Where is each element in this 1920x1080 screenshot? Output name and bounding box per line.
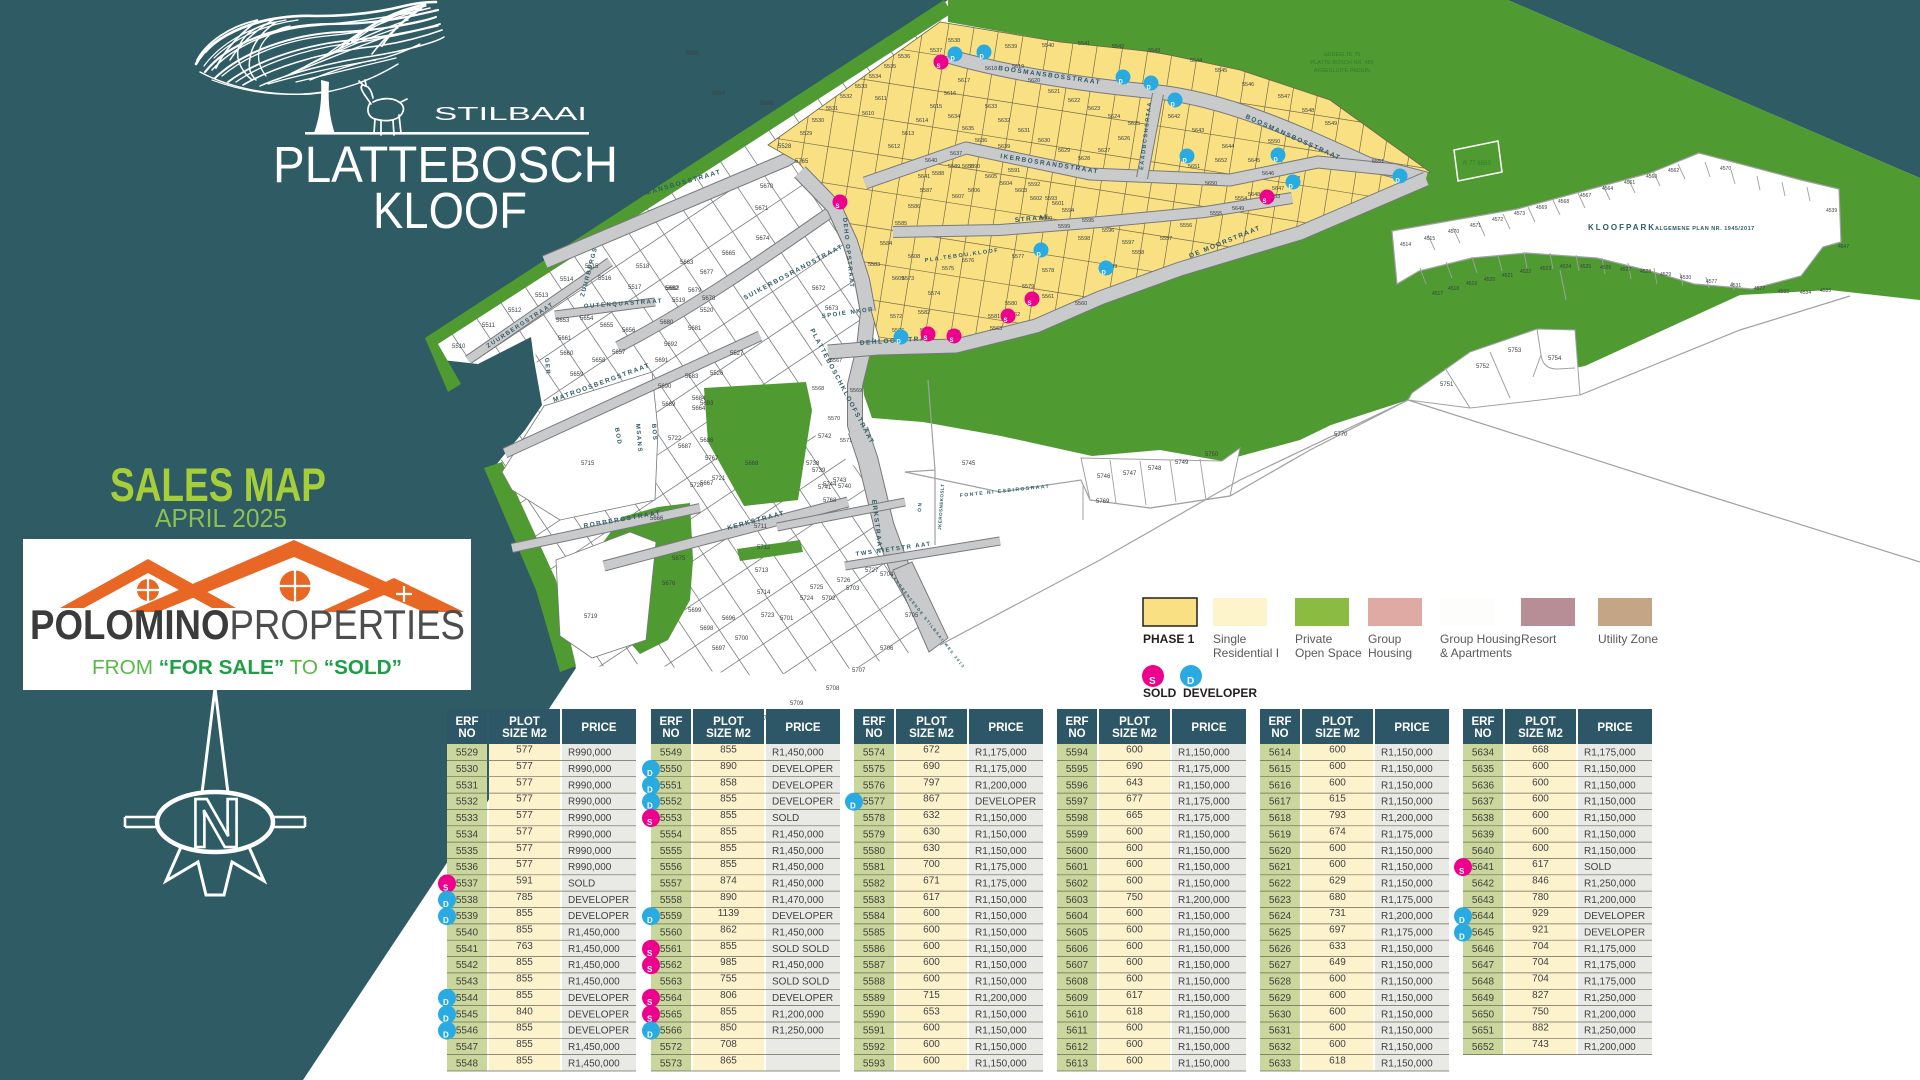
svg-text:5592: 5592 [863, 1042, 886, 1053]
svg-text:5750: 5750 [1205, 452, 1219, 458]
svg-text:4526: 4526 [1600, 265, 1611, 271]
svg-text:R1,175,000: R1,175,000 [1381, 829, 1433, 840]
svg-text:5586: 5586 [908, 204, 920, 210]
svg-text:855: 855 [516, 908, 533, 919]
svg-text:5597: 5597 [1066, 797, 1089, 808]
svg-text:& Apartments: & Apartments [1440, 646, 1512, 660]
svg-text:5714: 5714 [757, 590, 771, 596]
svg-text:4571: 4571 [1470, 223, 1481, 229]
svg-text:5639: 5639 [998, 144, 1010, 150]
svg-text:R1,150,000: R1,150,000 [1381, 1042, 1433, 1053]
svg-text:4564: 4564 [1602, 186, 1613, 192]
svg-text:5607: 5607 [952, 194, 964, 200]
svg-text:5708: 5708 [826, 686, 840, 692]
svg-text:R1,150,000: R1,150,000 [1584, 829, 1636, 840]
svg-text:5678: 5678 [702, 296, 716, 302]
svg-text:R990,000: R990,000 [568, 829, 612, 840]
svg-text:D: D [980, 55, 985, 61]
svg-text:R1,150,000: R1,150,000 [1584, 780, 1636, 791]
svg-text:R1,175,000: R1,175,000 [1584, 944, 1636, 955]
svg-text:5559: 5559 [660, 911, 683, 922]
svg-text:5614: 5614 [1269, 748, 1292, 759]
svg-text:5533: 5533 [855, 84, 867, 90]
svg-text:4525: 4525 [1580, 264, 1591, 270]
svg-text:5634: 5634 [948, 114, 960, 120]
svg-text:5536: 5536 [456, 862, 479, 873]
svg-text:5738: 5738 [806, 461, 820, 467]
svg-text:5638: 5638 [962, 164, 974, 170]
svg-text:4562: 4562 [1668, 168, 1679, 174]
svg-text:5638: 5638 [1472, 813, 1495, 824]
svg-text:R1,150,000: R1,150,000 [1178, 944, 1230, 955]
svg-text:1139: 1139 [718, 908, 740, 919]
svg-text:5619: 5619 [1012, 64, 1024, 70]
svg-text:R1,150,000: R1,150,000 [1381, 780, 1433, 791]
svg-text:5698: 5698 [700, 626, 714, 632]
svg-text:5635: 5635 [962, 126, 974, 132]
svg-text:806: 806 [720, 990, 737, 1001]
svg-text:731: 731 [1329, 908, 1346, 919]
svg-text:D: D [1274, 158, 1279, 164]
svg-text:5688: 5688 [760, 101, 774, 107]
svg-text:4577: 4577 [1706, 279, 1717, 285]
svg-text:Resort: Resort [1521, 632, 1557, 646]
svg-text:ERF: ERF [1066, 716, 1089, 728]
svg-text:5589: 5589 [948, 164, 960, 170]
svg-text:763: 763 [516, 941, 533, 952]
svg-text:600: 600 [923, 925, 940, 936]
svg-text:5642: 5642 [1472, 879, 1495, 890]
svg-text:R1,175,000: R1,175,000 [975, 862, 1027, 873]
svg-text:4529: 4529 [1660, 272, 1671, 278]
svg-text:617: 617 [1126, 990, 1143, 1001]
svg-text:PLOT: PLOT [1119, 716, 1150, 728]
svg-text:600: 600 [1532, 794, 1549, 805]
svg-text:5600: 5600 [1040, 216, 1052, 222]
svg-text:5613: 5613 [902, 131, 914, 137]
svg-text:4560: 4560 [1646, 174, 1657, 180]
svg-text:R1,150,000: R1,150,000 [975, 977, 1027, 988]
svg-text:5676: 5676 [662, 581, 676, 587]
svg-text:5598: 5598 [1066, 813, 1089, 824]
svg-text:R1,175,000: R1,175,000 [1584, 977, 1636, 988]
svg-text:5619: 5619 [1269, 829, 1292, 840]
svg-text:600: 600 [1532, 777, 1549, 788]
svg-text:5616: 5616 [1269, 780, 1292, 791]
svg-text:5553: 5553 [660, 813, 683, 824]
svg-text:R1,450,000: R1,450,000 [772, 928, 824, 939]
svg-text:5699: 5699 [688, 608, 702, 614]
svg-text:5648: 5648 [1472, 977, 1495, 988]
svg-text:5575: 5575 [942, 266, 954, 272]
svg-text:5709: 5709 [790, 701, 804, 707]
svg-text:674: 674 [1329, 826, 1346, 837]
svg-text:858: 858 [720, 777, 737, 788]
svg-text:5577: 5577 [863, 797, 886, 808]
svg-text:5517: 5517 [628, 285, 642, 291]
svg-text:5739: 5739 [812, 468, 826, 474]
svg-text:630: 630 [923, 826, 940, 837]
svg-text:5748: 5748 [1148, 466, 1162, 472]
svg-text:PRICE: PRICE [785, 722, 820, 734]
svg-text:591: 591 [516, 876, 533, 887]
svg-text:5603: 5603 [1015, 188, 1027, 194]
svg-text:600: 600 [1329, 745, 1346, 756]
svg-text:5579: 5579 [863, 829, 886, 840]
svg-text:5581: 5581 [863, 862, 886, 873]
svg-text:R1,150,000: R1,150,000 [1178, 829, 1230, 840]
svg-text:R1,150,000: R1,150,000 [975, 1058, 1027, 1069]
svg-text:S: S [937, 64, 941, 70]
svg-text:5563: 5563 [660, 977, 683, 988]
svg-text:5634: 5634 [1472, 748, 1495, 759]
svg-text:5663: 5663 [680, 260, 694, 266]
svg-text:5646: 5646 [1472, 944, 1495, 955]
svg-text:S: S [647, 965, 653, 974]
svg-text:R1,450,000: R1,450,000 [772, 748, 824, 759]
svg-text:5629: 5629 [1269, 993, 1292, 1004]
svg-text:5515: 5515 [585, 264, 599, 270]
svg-text:5627: 5627 [1098, 148, 1110, 154]
svg-text:5715: 5715 [581, 461, 595, 467]
svg-text:5541: 5541 [1078, 41, 1090, 47]
svg-text:5564: 5564 [660, 993, 683, 1004]
svg-text:5615: 5615 [930, 104, 942, 110]
svg-text:5675: 5675 [672, 556, 686, 562]
svg-text:750: 750 [1126, 892, 1143, 903]
svg-text:600: 600 [1329, 777, 1346, 788]
svg-text:5695: 5695 [686, 51, 700, 57]
svg-text:5645: 5645 [1472, 928, 1495, 939]
svg-text:PLATTE BOSCH NR. 485: PLATTE BOSCH NR. 485 [1310, 60, 1373, 66]
svg-text:5588: 5588 [863, 977, 886, 988]
svg-text:5753: 5753 [1508, 348, 1522, 354]
svg-text:DEVELOPER: DEVELOPER [1183, 686, 1257, 700]
svg-text:PLOT: PLOT [1525, 716, 1556, 728]
svg-text:5601: 5601 [1066, 862, 1089, 873]
svg-text:5596: 5596 [1066, 780, 1089, 791]
svg-text:ERF: ERF [1269, 716, 1292, 728]
svg-text:577: 577 [516, 761, 533, 772]
svg-text:4515: 4515 [1424, 236, 1435, 242]
svg-text:5620: 5620 [1269, 846, 1292, 857]
svg-text:PRICE: PRICE [1597, 722, 1632, 734]
svg-text:SIZE M2: SIZE M2 [1112, 728, 1157, 740]
svg-text:5629: 5629 [1058, 148, 1070, 154]
svg-text:618: 618 [1126, 1006, 1143, 1017]
svg-text:855: 855 [516, 1055, 533, 1066]
svg-text:PRICE: PRICE [1191, 722, 1226, 734]
svg-text:5646: 5646 [1262, 171, 1274, 177]
svg-text:5706: 5706 [880, 646, 894, 652]
svg-text:5574: 5574 [863, 748, 886, 759]
svg-text:5727: 5727 [865, 568, 879, 574]
svg-text:5576: 5576 [863, 780, 886, 791]
svg-text:5701: 5701 [780, 616, 794, 622]
svg-text:R1,150,000: R1,150,000 [1178, 1042, 1230, 1053]
svg-text:4534: 4534 [1800, 290, 1811, 296]
svg-text:5622: 5622 [1068, 98, 1080, 104]
svg-text:5767: 5767 [705, 456, 719, 462]
svg-text:577: 577 [516, 843, 533, 854]
svg-text:672: 672 [923, 745, 940, 756]
svg-text:630: 630 [923, 843, 940, 854]
svg-text:890: 890 [720, 761, 737, 772]
svg-text:5636: 5636 [1472, 780, 1495, 791]
svg-text:5572: 5572 [890, 314, 902, 320]
svg-text:5621: 5621 [1269, 862, 1292, 873]
svg-text:R1,450,000: R1,450,000 [772, 829, 824, 840]
svg-text:PLOT: PLOT [713, 716, 744, 728]
svg-text:R1,200,000: R1,200,000 [975, 993, 1027, 1004]
svg-text:5609: 5609 [892, 276, 904, 282]
svg-text:R1,200,000: R1,200,000 [1584, 895, 1636, 906]
svg-text:5535: 5535 [884, 64, 896, 70]
svg-text:5541: 5541 [456, 944, 479, 955]
svg-text:5543: 5543 [456, 977, 479, 988]
svg-text:R1,450,000: R1,450,000 [568, 977, 620, 988]
svg-text:PLOT: PLOT [509, 716, 540, 728]
svg-text:R1,150,000: R1,150,000 [1584, 797, 1636, 808]
svg-text:R1,200,000: R1,200,000 [975, 780, 1027, 791]
svg-text:5588: 5588 [932, 171, 944, 177]
svg-text:600: 600 [1329, 974, 1346, 985]
svg-text:5649: 5649 [1472, 993, 1495, 1004]
svg-text:KLOOFPARK: KLOOFPARK [1588, 223, 1656, 232]
svg-text:Open Space: Open Space [1295, 646, 1362, 660]
svg-text:855: 855 [516, 990, 533, 1001]
svg-text:R1,150,000: R1,150,000 [1381, 764, 1433, 775]
svg-text:5644: 5644 [1472, 911, 1495, 922]
svg-text:Private: Private [1295, 632, 1333, 646]
svg-text:5587: 5587 [920, 188, 932, 194]
svg-text:5746: 5746 [1097, 474, 1111, 480]
svg-text:5574: 5574 [928, 291, 940, 297]
svg-text:600: 600 [1329, 859, 1346, 870]
svg-text:5589: 5589 [863, 993, 886, 1004]
svg-text:5614: 5614 [916, 118, 928, 124]
svg-text:649: 649 [1329, 957, 1346, 968]
svg-text:5531: 5531 [826, 106, 838, 112]
svg-text:5637: 5637 [950, 151, 962, 157]
svg-text:5645: 5645 [1248, 158, 1260, 164]
svg-text:5742: 5742 [818, 434, 832, 440]
svg-text:5648: 5648 [1248, 192, 1260, 198]
svg-text:STILBAAI: STILBAAI [434, 103, 587, 124]
svg-text:D: D [1119, 80, 1124, 86]
svg-text:5545: 5545 [456, 1009, 479, 1020]
svg-text:855: 855 [516, 1023, 533, 1034]
svg-text:R1,150,000: R1,150,000 [1381, 748, 1433, 759]
svg-text:865: 865 [720, 1055, 737, 1066]
svg-text:855: 855 [720, 1006, 737, 1017]
svg-text:R990,000: R990,000 [568, 813, 612, 824]
svg-text:5608: 5608 [908, 254, 920, 260]
svg-text:5640: 5640 [1472, 846, 1495, 857]
svg-text:D: D [951, 57, 956, 63]
svg-text:4531: 4531 [1730, 283, 1741, 289]
svg-text:D: D [647, 1031, 653, 1040]
svg-text:700: 700 [923, 859, 940, 870]
svg-text:5740: 5740 [838, 484, 852, 490]
svg-text:PLOT: PLOT [916, 716, 947, 728]
svg-text:S: S [1028, 301, 1032, 307]
svg-text:APRIL 2025: APRIL 2025 [155, 503, 287, 533]
svg-text:5640: 5640 [925, 158, 937, 164]
svg-text:R1,150,000: R1,150,000 [1381, 862, 1433, 873]
svg-text:697: 697 [1329, 925, 1346, 936]
svg-text:5644: 5644 [1222, 144, 1234, 150]
svg-text:D: D [1289, 185, 1294, 191]
svg-text:5677: 5677 [700, 270, 714, 276]
svg-text:5529: 5529 [800, 131, 812, 137]
svg-text:D: D [443, 916, 449, 925]
svg-text:N: N [191, 784, 242, 862]
svg-text:5512: 5512 [508, 308, 522, 314]
svg-text:D: D [1147, 86, 1152, 92]
svg-text:600: 600 [1329, 843, 1346, 854]
svg-text:5636: 5636 [975, 138, 987, 144]
svg-text:5549: 5549 [660, 748, 683, 759]
svg-text:5651: 5651 [1188, 164, 1200, 170]
svg-text:5599: 5599 [1066, 829, 1089, 840]
svg-text:5617: 5617 [958, 78, 970, 84]
svg-text:5705: 5705 [905, 613, 919, 619]
svg-text:5765: 5765 [795, 159, 809, 165]
svg-text:Residential I: Residential I [1213, 646, 1279, 660]
svg-text:R1,200,000: R1,200,000 [1584, 1042, 1636, 1053]
svg-text:S: S [1004, 318, 1008, 324]
svg-text:5724: 5724 [800, 596, 814, 602]
svg-text:4567: 4567 [1580, 193, 1591, 199]
svg-text:R1,450,000: R1,450,000 [772, 846, 824, 857]
svg-text:5668: 5668 [745, 461, 759, 467]
svg-text:600: 600 [1126, 876, 1143, 887]
svg-text:5577: 5577 [1012, 254, 1024, 260]
svg-text:R990,000: R990,000 [568, 780, 612, 791]
svg-text:S: S [1263, 199, 1267, 205]
svg-text:629: 629 [1329, 876, 1346, 887]
svg-text:4568: 4568 [1558, 199, 1569, 205]
svg-text:600: 600 [1532, 761, 1549, 772]
svg-text:5702: 5702 [822, 596, 836, 602]
svg-text:5548: 5548 [456, 1058, 479, 1069]
svg-text:D: D [1037, 253, 1042, 259]
svg-text:5544: 5544 [456, 993, 479, 1004]
svg-text:ON: ON [917, 501, 924, 512]
svg-text:577: 577 [516, 777, 533, 788]
svg-text:5516: 5516 [598, 276, 612, 282]
svg-text:5692: 5692 [664, 342, 678, 348]
svg-text:5721: 5721 [712, 476, 726, 482]
svg-text:5635: 5635 [1472, 764, 1495, 775]
svg-text:793: 793 [1329, 810, 1346, 821]
svg-text:R 77 6553: R 77 6553 [1463, 161, 1491, 167]
svg-text:R1,150,000: R1,150,000 [1381, 960, 1433, 971]
svg-text:5606: 5606 [968, 188, 980, 194]
svg-text:5550: 5550 [1268, 139, 1280, 145]
svg-text:600: 600 [1126, 925, 1143, 936]
svg-text:5700: 5700 [735, 636, 749, 642]
svg-text:DEVELOPER: DEVELOPER [975, 797, 1036, 808]
svg-text:R1,250,000: R1,250,000 [1584, 993, 1636, 1004]
svg-text:5529: 5529 [456, 748, 479, 759]
svg-text:5631: 5631 [1269, 1026, 1292, 1037]
svg-text:4521: 4521 [1502, 273, 1513, 279]
svg-text:5653: 5653 [556, 318, 570, 324]
svg-text:5631: 5631 [1018, 128, 1030, 134]
svg-text:5585: 5585 [863, 928, 886, 939]
svg-text:5630: 5630 [1269, 1009, 1292, 1020]
svg-text:862: 862 [720, 925, 737, 936]
svg-text:R1,450,000: R1,450,000 [772, 960, 824, 971]
svg-text:R1,450,000: R1,450,000 [568, 960, 620, 971]
svg-text:POLOMINOPROPERTIES: POLOMINOPROPERTIES [30, 601, 465, 648]
svg-text:5661: 5661 [558, 336, 572, 342]
svg-text:5560: 5560 [660, 928, 683, 939]
svg-text:5671: 5671 [755, 206, 769, 212]
svg-text:921: 921 [1532, 925, 1549, 936]
svg-text:5570: 5570 [828, 416, 840, 422]
svg-text:5584: 5584 [880, 241, 892, 247]
svg-text:5637: 5637 [1472, 797, 1495, 808]
svg-text:R1,150,000: R1,150,000 [1178, 780, 1230, 791]
svg-text:NO: NO [458, 728, 475, 740]
svg-text:5687: 5687 [678, 444, 692, 450]
svg-text:NO: NO [865, 728, 882, 740]
svg-text:5549: 5549 [1325, 121, 1337, 127]
svg-text:R1,150,000: R1,150,000 [1381, 977, 1433, 988]
svg-text:755: 755 [720, 974, 737, 985]
svg-text:R1,200,000: R1,200,000 [1381, 813, 1433, 824]
svg-text:DEVELOPER: DEVELOPER [772, 911, 833, 922]
svg-text:Single: Single [1213, 632, 1247, 646]
svg-text:5547: 5547 [456, 1042, 479, 1053]
svg-text:600: 600 [1329, 761, 1346, 772]
svg-text:R1,150,000: R1,150,000 [1381, 1058, 1433, 1069]
svg-text:5590: 5590 [863, 1009, 886, 1020]
svg-text:5565: 5565 [660, 1009, 683, 1020]
svg-text:4519: 4519 [1466, 281, 1477, 287]
svg-text:5602: 5602 [1066, 879, 1089, 890]
svg-text:4527: 4527 [1620, 267, 1631, 273]
svg-text:5657: 5657 [612, 350, 626, 356]
svg-text:R1,150,000: R1,150,000 [975, 1042, 1027, 1053]
svg-text:5626: 5626 [1269, 944, 1292, 955]
svg-text:600: 600 [1532, 810, 1549, 821]
svg-text:5567: 5567 [830, 358, 842, 364]
svg-text:5586: 5586 [863, 944, 886, 955]
svg-text:5585: 5585 [895, 221, 907, 227]
svg-text:5540: 5540 [456, 928, 479, 939]
svg-text:SOLD: SOLD [1584, 862, 1611, 873]
svg-text:R1,150,000: R1,150,000 [975, 911, 1027, 922]
svg-text:R990,000: R990,000 [568, 797, 612, 808]
svg-text:SIZE M2: SIZE M2 [909, 728, 954, 740]
svg-text:5596: 5596 [1102, 228, 1114, 234]
svg-text:5510: 5510 [452, 344, 466, 350]
svg-text:R990,000: R990,000 [568, 764, 612, 775]
svg-text:600: 600 [1126, 941, 1143, 952]
svg-text:5542: 5542 [1112, 44, 1124, 50]
svg-text:846: 846 [1532, 876, 1549, 887]
svg-text:618: 618 [1329, 1055, 1346, 1066]
svg-text:4518: 4518 [1448, 286, 1459, 292]
svg-text:5723: 5723 [761, 613, 775, 619]
svg-text:5558: 5558 [1132, 250, 1144, 256]
svg-text:5533: 5533 [456, 813, 479, 824]
svg-text:690: 690 [1126, 761, 1143, 772]
